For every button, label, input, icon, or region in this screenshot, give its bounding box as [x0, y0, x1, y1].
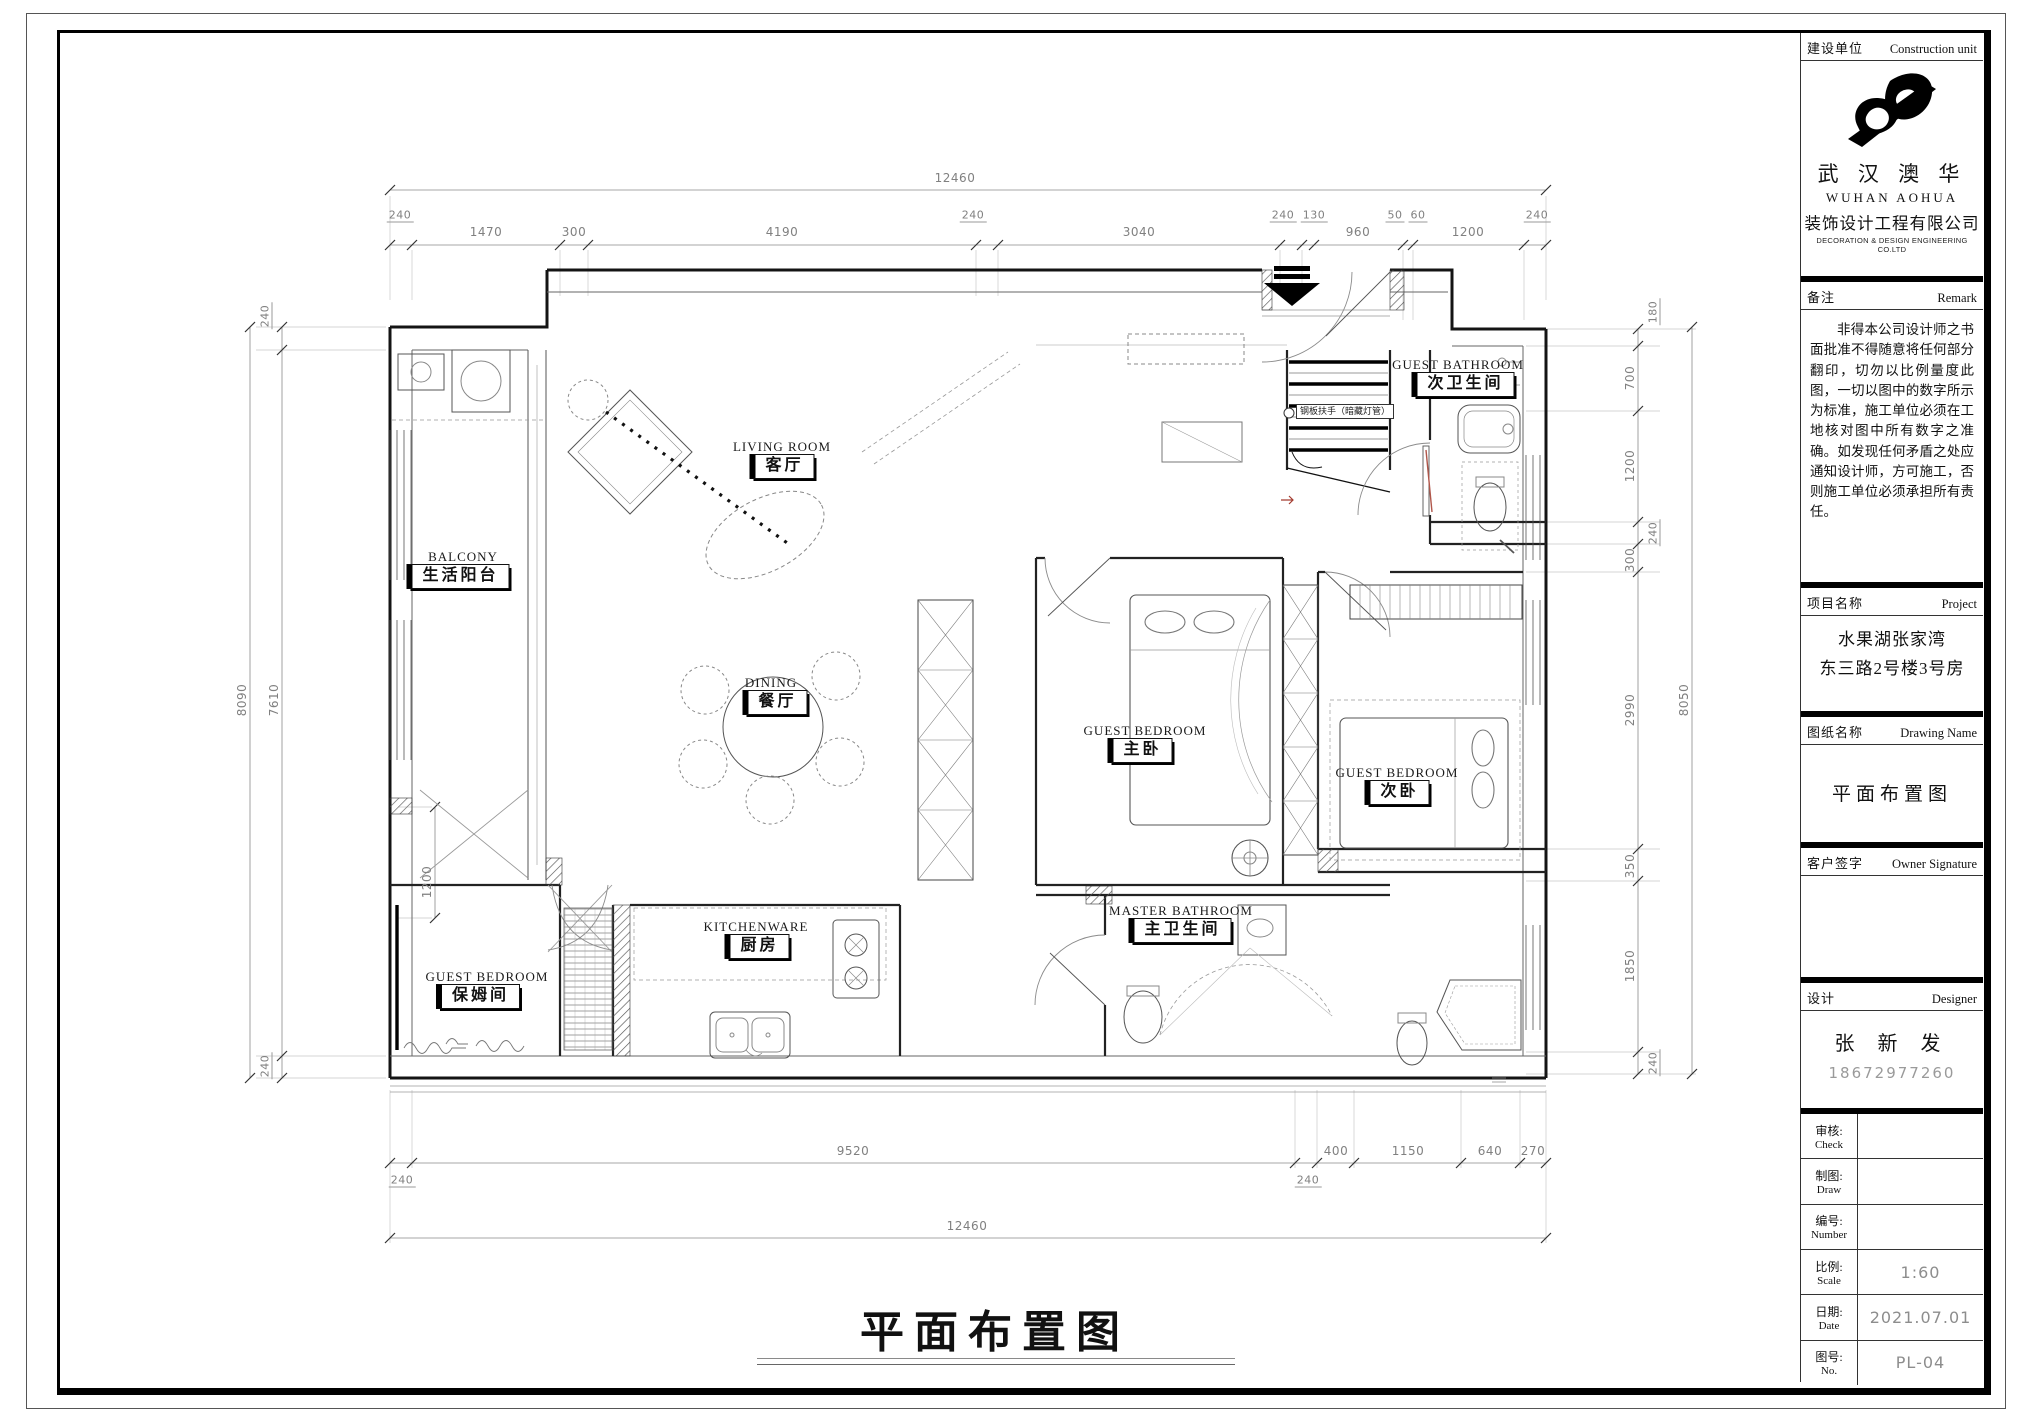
- check-value: [1858, 1114, 1983, 1158]
- owner-signature-section: 客户签字 Owner Signature: [1801, 848, 1983, 977]
- dim-label: 240: [389, 1175, 416, 1188]
- room-label-balcony-en: BALCONY: [428, 550, 498, 563]
- dim-label: 240: [260, 303, 273, 330]
- no-value: PL-04: [1858, 1341, 1983, 1385]
- dim-overall-bottom: 12460: [947, 1220, 988, 1232]
- dim-label: 240: [1524, 210, 1551, 223]
- dim-label: 50: [1386, 210, 1405, 223]
- dim-label: 700: [1624, 366, 1636, 390]
- room-label-dining-en: DINING: [745, 676, 797, 689]
- remark-label-en: Remark: [1937, 291, 1977, 306]
- table-row-scale: 比例: Scale 1:60: [1801, 1250, 1983, 1295]
- dim-label: 640: [1478, 1145, 1502, 1157]
- interior-walls: [390, 310, 1546, 1056]
- dim-label: 300: [1624, 548, 1636, 572]
- drawing-sheet: 12460 240 1470 300 4190 240 3040 240 130…: [0, 0, 2034, 1424]
- number-label-cn: 编号:: [1815, 1212, 1842, 1229]
- room-label-balcony-cn: 生活阳台: [406, 564, 509, 589]
- room-label-guest-bathroom-en: GUEST BATHROOM: [1392, 358, 1524, 371]
- check-label-en: Check: [1815, 1139, 1843, 1151]
- floor-plan-drawing: [0, 0, 2034, 1424]
- room-label-master-bathroom-cn: 主卫生间: [1128, 918, 1231, 943]
- room-label-nanny-room-en: GUEST BEDROOM: [426, 970, 549, 983]
- dim-label: 400: [1324, 1145, 1348, 1157]
- table-row-number: 编号: Number: [1801, 1205, 1983, 1250]
- drawing-name-value: 平面布置图: [1801, 779, 1983, 806]
- entry-arrow-icon: [1264, 266, 1320, 306]
- construction-unit-section: 建设单位 Construction unit 武 汉 澳 华 WUHAN AOH…: [1801, 33, 1983, 276]
- designer-section: 设计 Designer 张 新 发 18672977260: [1801, 983, 1983, 1108]
- designer-phone: 18672977260: [1801, 1064, 1983, 1082]
- dim-label: 1850: [1624, 950, 1636, 983]
- dim-label: 240: [1270, 210, 1297, 223]
- room-label-living-en: LIVING ROOM: [733, 440, 831, 453]
- title-block: 建设单位 Construction unit 武 汉 澳 华 WUHAN AOH…: [1800, 33, 1983, 1382]
- room-label-kitchen-en: KITCHENWARE: [704, 920, 809, 933]
- title-underline-1: [757, 1358, 1235, 1359]
- dim-label: 1200: [1452, 226, 1485, 238]
- designer-label-en: Designer: [1932, 992, 1977, 1007]
- title-underline-2: [757, 1364, 1235, 1365]
- remark-label-cn: 备注: [1807, 287, 1835, 306]
- construction-unit-label-cn: 建设单位: [1807, 38, 1863, 57]
- table-row-no: 图号: No. PL-04: [1801, 1341, 1983, 1385]
- dimension-ticks: [245, 185, 1697, 1243]
- dim-label: 300: [562, 226, 586, 238]
- room-label-master-bedroom-en: GUEST BEDROOM: [1084, 724, 1207, 737]
- remark-text: 非得本公司设计师之书面批准不得随意将任何部分翻印，切勿以比例量度此图，一切以图中…: [1801, 310, 1983, 533]
- wall-hatches: [390, 270, 1404, 1056]
- table-row-date: 日期: Date 2021.07.01: [1801, 1295, 1983, 1340]
- date-label-cn: 日期:: [1815, 1303, 1842, 1320]
- owner-signature-label-cn: 客户签字: [1807, 853, 1863, 872]
- dim-label: 7610: [268, 684, 280, 717]
- no-label-en: No.: [1821, 1365, 1837, 1377]
- dim-label: 270: [1521, 1145, 1545, 1157]
- dim-balcony-inner: 1200: [421, 866, 433, 899]
- number-value: [1858, 1205, 1983, 1249]
- draw-value: [1858, 1159, 1983, 1203]
- dim-overall-top: 12460: [935, 172, 976, 184]
- room-label-dining-cn: 餐厅: [742, 690, 807, 715]
- no-label-cn: 图号:: [1815, 1348, 1842, 1365]
- dim-label: 350: [1624, 854, 1636, 878]
- table-row-draw: 制图: Draw: [1801, 1159, 1983, 1204]
- dim-right-outer: 8050: [1678, 684, 1690, 717]
- drawing-name-label-en: Drawing Name: [1900, 726, 1977, 741]
- info-table-section: 审核: Check 制图: Draw 编号: Number: [1801, 1114, 1983, 1385]
- dim-label: 9520: [837, 1145, 870, 1157]
- project-name-line1: 水果湖张家湾: [1801, 626, 1983, 655]
- dim-label: 60: [1409, 210, 1428, 223]
- dim-label: 240: [387, 210, 414, 223]
- room-label-nanny-room-cn: 保姆间: [436, 984, 520, 1009]
- room-label-guest-bathroom-cn: 次卫生间: [1411, 372, 1514, 397]
- check-label-cn: 审核:: [1815, 1122, 1842, 1139]
- scale-label-cn: 比例:: [1815, 1258, 1842, 1275]
- dim-label: 130: [1301, 210, 1328, 223]
- company-sub-cn: 装饰设计工程有限公司: [1801, 210, 1983, 234]
- owner-signature-area[interactable]: [1801, 876, 1983, 966]
- date-value: 2021.07.01: [1858, 1295, 1983, 1339]
- wardrobes: [564, 334, 1522, 1050]
- dim-label: 240: [960, 210, 987, 223]
- dim-label: 3040: [1123, 226, 1156, 238]
- table-row-check: 审核: Check: [1801, 1114, 1983, 1159]
- dim-left-outer: 8090: [236, 684, 248, 717]
- dim-label: 240: [1648, 1050, 1661, 1077]
- company-logo: [1801, 61, 1983, 156]
- scale-label-en: Scale: [1817, 1275, 1841, 1287]
- room-label-second-bedroom-cn: 次卧: [1364, 780, 1429, 805]
- dim-label: 1470: [470, 226, 503, 238]
- dim-label: 240: [1295, 1175, 1322, 1188]
- draw-label-en: Draw: [1817, 1184, 1841, 1196]
- company-name-cn: 武 汉 澳 华: [1801, 158, 1983, 188]
- aohua-logo-icon: [1844, 65, 1940, 151]
- room-label-kitchen-cn: 厨房: [724, 934, 789, 959]
- project-section: 项目名称 Project 水果湖张家湾 东三路2号楼3号房: [1801, 588, 1983, 711]
- scale-value: 1:60: [1858, 1250, 1983, 1294]
- remark-section: 备注 Remark 非得本公司设计师之书面批准不得随意将任何部分翻印，切勿以比例…: [1801, 282, 1983, 582]
- date-label-en: Date: [1819, 1320, 1840, 1332]
- dimension-lines: [250, 190, 1692, 1238]
- owner-signature-label-en: Owner Signature: [1892, 857, 1977, 872]
- dim-label: 1200: [1624, 450, 1636, 483]
- dim-label: 180: [1648, 299, 1661, 326]
- number-label-en: Number: [1811, 1229, 1847, 1241]
- room-label-master-bedroom-cn: 主卧: [1107, 738, 1172, 763]
- designer-name: 张 新 发: [1801, 1027, 1983, 1056]
- project-name-line2: 东三路2号楼3号房: [1801, 655, 1983, 684]
- draw-label-cn: 制图:: [1815, 1167, 1842, 1184]
- room-label-master-bathroom-en: MASTER BATHROOM: [1109, 904, 1253, 917]
- room-label-living-cn: 客厅: [749, 454, 814, 479]
- construction-unit-label-en: Construction unit: [1890, 42, 1977, 57]
- dim-label: 240: [260, 1053, 273, 1080]
- outer-walls: [390, 270, 1546, 1092]
- designer-label-cn: 设计: [1807, 988, 1835, 1007]
- balcony-details: [392, 350, 546, 1054]
- staircase: [1281, 362, 1390, 504]
- dim-label: 960: [1346, 226, 1370, 238]
- room-label-second-bedroom-en: GUEST BEDROOM: [1336, 766, 1459, 779]
- drawing-name-section: 图纸名称 Drawing Name 平面布置图: [1801, 717, 1983, 842]
- dim-label: 240: [1648, 520, 1661, 547]
- drawing-name-label-cn: 图纸名称: [1807, 722, 1863, 741]
- company-name-en: WUHAN AOHUA: [1801, 190, 1983, 206]
- company-sub-en: DECORATION & DESIGN ENGINEERING CO.LTD: [1801, 236, 1983, 254]
- dim-label: 4190: [766, 226, 799, 238]
- sheet-title: 平面布置图: [860, 1296, 1130, 1360]
- dim-label: 1150: [1392, 1145, 1425, 1157]
- project-label-en: Project: [1942, 597, 1977, 612]
- handrail-note: 钢板扶手（暗藏灯管）: [1296, 404, 1394, 419]
- project-label-cn: 项目名称: [1807, 593, 1863, 612]
- dim-label: 2990: [1624, 694, 1636, 727]
